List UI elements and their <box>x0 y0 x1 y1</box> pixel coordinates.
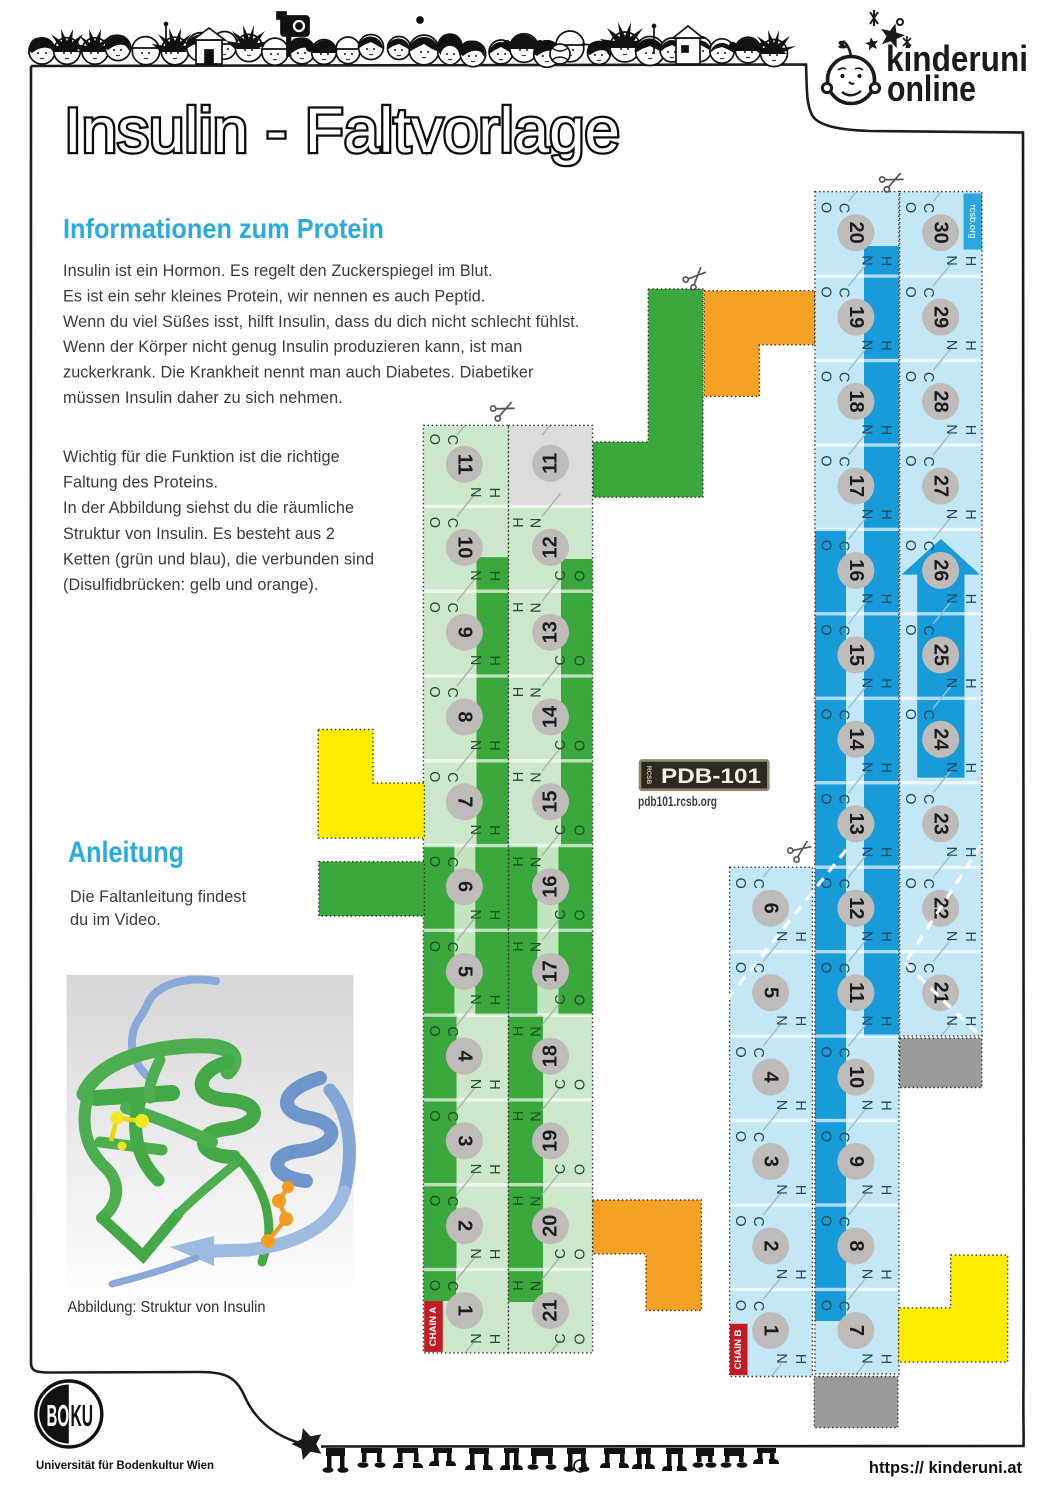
svg-text:Die Faltanleitung findest: Die Faltanleitung findest <box>70 888 247 906</box>
svg-text:N: N <box>943 255 959 265</box>
svg-text:O: O <box>817 1215 833 1226</box>
svg-text:H: H <box>511 687 527 697</box>
svg-text:6: 6 <box>453 881 475 892</box>
svg-text:N: N <box>858 762 874 772</box>
svg-text:O: O <box>817 287 833 298</box>
svg-text:8: 8 <box>453 711 475 722</box>
svg-text:(Disulfidbrücken: gelb und ora: (Disulfidbrücken: gelb und orange). <box>63 576 318 594</box>
svg-text:O: O <box>426 434 442 445</box>
svg-text:H: H <box>792 1354 808 1364</box>
svg-text:O: O <box>573 1079 589 1090</box>
svg-text:CHAIN A: CHAIN A <box>428 1307 439 1347</box>
svg-text:19: 19 <box>845 306 867 328</box>
svg-text:O: O <box>426 771 442 782</box>
svg-text:H: H <box>511 602 527 612</box>
svg-text:10: 10 <box>453 536 475 558</box>
svg-text:H: H <box>511 856 527 866</box>
svg-text:O: O <box>426 517 442 528</box>
svg-text:online: online <box>887 68 976 109</box>
svg-text:N: N <box>858 1016 874 1026</box>
svg-text:N: N <box>773 1015 789 1025</box>
svg-text:H: H <box>877 763 893 773</box>
svg-text:H: H <box>877 509 893 519</box>
svg-text:H: H <box>792 1269 808 1279</box>
svg-text:C: C <box>444 1026 460 1036</box>
svg-text:C: C <box>553 825 569 835</box>
svg-text:15: 15 <box>540 791 562 813</box>
svg-text:C: C <box>553 740 569 750</box>
svg-text:N: N <box>943 762 959 772</box>
svg-text:30: 30 <box>930 221 952 243</box>
svg-text:N: N <box>529 603 545 613</box>
svg-text:17: 17 <box>845 475 867 497</box>
svg-text:H: H <box>877 1185 893 1195</box>
svg-text:H: H <box>486 910 502 920</box>
svg-text:rcsb.org: rcsb.org <box>967 204 978 238</box>
svg-text:CHAIN B: CHAIN B <box>733 1329 744 1369</box>
svg-text:O: O <box>732 962 748 973</box>
svg-text:H: H <box>486 1079 502 1089</box>
svg-text:H: H <box>511 1111 527 1121</box>
svg-text:4: 4 <box>453 1051 475 1063</box>
svg-text:O: O <box>732 1047 748 1058</box>
svg-text:C: C <box>920 794 936 804</box>
svg-text:Struktur von Insulin. Es beste: Struktur von Insulin. Es besteht aus 2 <box>63 525 335 543</box>
svg-text:C: C <box>553 909 569 919</box>
svg-text:C: C <box>444 942 460 952</box>
svg-text:H: H <box>877 678 893 688</box>
svg-text:C: C <box>920 710 936 720</box>
svg-text:O: O <box>573 655 589 666</box>
svg-text:Abbildung: Struktur von Insuli: Abbildung: Struktur von Insulin <box>68 1299 266 1316</box>
svg-text:zuckerkrank. Die Krankheit nen: zuckerkrank. Die Krankheit nennt man auc… <box>63 364 534 382</box>
svg-text:N: N <box>529 1281 545 1291</box>
svg-text:O: O <box>817 1300 833 1311</box>
svg-text:C: C <box>835 1301 851 1311</box>
svg-text:Wichtig für die Funktion ist d: Wichtig für die Funktion ist die richtig… <box>63 448 340 466</box>
svg-text:O: O <box>817 962 833 973</box>
svg-text:BO: BO <box>47 1398 70 1433</box>
svg-text:O: O <box>817 202 833 213</box>
svg-text:24: 24 <box>930 728 952 751</box>
svg-text:13: 13 <box>845 813 867 835</box>
svg-text:N: N <box>858 1100 874 1110</box>
svg-text:C: C <box>444 518 460 528</box>
svg-text:C: C <box>835 1132 851 1142</box>
svg-text:16: 16 <box>540 875 562 897</box>
svg-text:O: O <box>732 1300 748 1311</box>
svg-text:H: H <box>486 656 502 666</box>
svg-text:H: H <box>486 1249 502 1259</box>
svg-text:C: C <box>920 963 936 973</box>
svg-text:C: C <box>750 1216 766 1226</box>
svg-text:O: O <box>573 825 589 836</box>
svg-text:H: H <box>877 1269 893 1279</box>
svg-text:O: O <box>573 570 589 581</box>
svg-text:H: H <box>962 509 978 519</box>
svg-text:H: H <box>877 932 893 942</box>
svg-text:N: N <box>773 1100 789 1110</box>
svg-text:Es ist ein sehr kleines Protei: Es ist ein sehr kleines Protein, wir nen… <box>63 287 486 305</box>
svg-text:N: N <box>773 1269 789 1279</box>
svg-text:Wenn der Körper nicht genug In: Wenn der Körper nicht genug Insulin prod… <box>63 338 522 356</box>
svg-text:26: 26 <box>930 559 952 581</box>
svg-text:N: N <box>529 772 545 782</box>
svg-text:H: H <box>792 932 808 942</box>
svg-text:C: C <box>835 710 851 720</box>
svg-text:19: 19 <box>540 1130 562 1152</box>
svg-text:18: 18 <box>845 390 867 412</box>
svg-text:C: C <box>553 1249 569 1259</box>
svg-text:N: N <box>467 570 483 580</box>
svg-text:N: N <box>858 509 874 519</box>
svg-text:5: 5 <box>760 987 782 998</box>
svg-text:O: O <box>902 287 918 298</box>
svg-text:In der Abbildung siehst du die: In der Abbildung siehst du die räumliche <box>63 499 354 517</box>
svg-text:C: C <box>444 435 460 445</box>
svg-text:28: 28 <box>930 390 952 412</box>
svg-text:H: H <box>511 1196 527 1206</box>
svg-text:O: O <box>902 624 918 635</box>
svg-text:C: C <box>835 794 851 804</box>
svg-text:H: H <box>486 488 502 498</box>
svg-text:H: H <box>511 1026 527 1036</box>
svg-text:N: N <box>858 255 874 265</box>
svg-text:C: C <box>835 203 851 213</box>
svg-text:O: O <box>902 878 918 889</box>
svg-text:C: C <box>750 1047 766 1057</box>
svg-text:N: N <box>943 424 959 434</box>
svg-text:N: N <box>943 509 959 519</box>
svg-text:C: C <box>835 372 851 382</box>
svg-text:N: N <box>467 825 483 835</box>
svg-text:N: N <box>858 340 874 350</box>
svg-text:7: 7 <box>453 796 475 807</box>
svg-text:O: O <box>732 1131 748 1142</box>
svg-text:C: C <box>835 625 851 635</box>
svg-text:9: 9 <box>453 627 475 638</box>
svg-text:3: 3 <box>760 1156 782 1167</box>
svg-text:C: C <box>444 1111 460 1121</box>
svg-text:C: C <box>444 857 460 867</box>
svg-text:21: 21 <box>540 1299 562 1321</box>
svg-text:H: H <box>962 763 978 773</box>
svg-text:C: C <box>444 1281 460 1291</box>
svg-text:O: O <box>573 740 589 751</box>
svg-text:O: O <box>426 686 442 697</box>
svg-text:N: N <box>529 687 545 697</box>
svg-text:C: C <box>920 541 936 551</box>
svg-text:du im Video.: du im Video. <box>70 911 161 929</box>
svg-text:14: 14 <box>845 728 867 751</box>
svg-text:C: C <box>444 687 460 697</box>
svg-text:O: O <box>902 709 918 720</box>
svg-text:H: H <box>962 256 978 266</box>
svg-text:N: N <box>943 847 959 857</box>
svg-text:H: H <box>486 571 502 581</box>
svg-text:H: H <box>792 1185 808 1195</box>
svg-text:N: N <box>858 931 874 941</box>
svg-text:Universität für Bodenkultur Wi: Universität für Bodenkultur Wien <box>36 1458 214 1472</box>
svg-text:H: H <box>511 772 527 782</box>
svg-text:H: H <box>962 425 978 435</box>
svg-text:H: H <box>877 847 893 857</box>
svg-text:18: 18 <box>540 1045 562 1067</box>
svg-text:C: C <box>920 203 936 213</box>
svg-text:20: 20 <box>845 221 867 243</box>
svg-text:C: C <box>835 1047 851 1057</box>
svg-text:C: C <box>920 625 936 635</box>
svg-text:H: H <box>486 1164 502 1174</box>
svg-text:N: N <box>858 847 874 857</box>
svg-text:N: N <box>529 857 545 867</box>
svg-text:H: H <box>962 340 978 350</box>
svg-text:N: N <box>529 1111 545 1121</box>
svg-text:25: 25 <box>930 644 952 666</box>
svg-text:N: N <box>773 1184 789 1194</box>
svg-text:C: C <box>553 1333 569 1343</box>
svg-text:https:// kinderuni.at: https:// kinderuni.at <box>869 1459 1023 1477</box>
svg-text:Insulin ist ein Hormon. Es reg: Insulin ist ein Hormon. Es regelt den Zu… <box>63 262 493 280</box>
svg-text:C: C <box>835 456 851 466</box>
svg-text:C: C <box>835 963 851 973</box>
svg-text:16: 16 <box>845 559 867 581</box>
svg-text:N: N <box>467 740 483 750</box>
svg-text:5: 5 <box>453 966 475 977</box>
svg-text:3: 3 <box>453 1135 475 1146</box>
svg-text:Insulin - Faltvorlage: Insulin - Faltvorlage <box>64 96 620 166</box>
svg-text:11: 11 <box>845 982 867 1003</box>
svg-text:N: N <box>467 487 483 497</box>
svg-text:6: 6 <box>760 903 782 914</box>
svg-text:N: N <box>858 1184 874 1194</box>
svg-text:4: 4 <box>760 1072 782 1084</box>
svg-text:C: C <box>444 603 460 613</box>
svg-text:29: 29 <box>930 306 952 328</box>
svg-text:H: H <box>877 1016 893 1026</box>
svg-text:14: 14 <box>540 705 562 728</box>
svg-text:H: H <box>486 740 502 750</box>
svg-text:N: N <box>467 1249 483 1259</box>
svg-text:O: O <box>817 455 833 466</box>
svg-text:H: H <box>962 678 978 688</box>
svg-text:C: C <box>444 1196 460 1206</box>
svg-text:Informationen zum Protein: Informationen zum Protein <box>63 213 384 244</box>
svg-text:O: O <box>573 994 589 1005</box>
svg-text:O: O <box>426 602 442 613</box>
svg-text:O: O <box>817 624 833 635</box>
svg-text:1: 1 <box>453 1305 475 1316</box>
svg-text:O: O <box>573 1164 589 1175</box>
svg-text:O: O <box>426 1110 442 1121</box>
svg-text:12: 12 <box>540 536 562 558</box>
svg-text:2: 2 <box>760 1240 782 1251</box>
svg-text:O: O <box>902 455 918 466</box>
svg-text:H: H <box>877 340 893 350</box>
svg-text:Faltung des Proteins.: Faltung des Proteins. <box>63 474 218 492</box>
svg-text:N: N <box>529 1026 545 1036</box>
svg-text:N: N <box>943 678 959 688</box>
svg-text:N: N <box>467 655 483 665</box>
svg-text:O: O <box>426 1195 442 1206</box>
svg-text:N: N <box>529 942 545 952</box>
svg-text:O: O <box>902 371 918 382</box>
svg-text:H: H <box>792 1016 808 1026</box>
svg-text:2: 2 <box>453 1220 475 1231</box>
svg-text:KU: KU <box>71 1398 94 1433</box>
svg-text:H: H <box>792 1100 808 1110</box>
svg-text:12: 12 <box>845 897 867 919</box>
svg-text:C: C <box>920 287 936 297</box>
svg-text:H: H <box>962 932 978 942</box>
svg-text:11: 11 <box>540 453 562 474</box>
svg-text:C: C <box>920 456 936 466</box>
svg-text:O: O <box>732 878 748 889</box>
svg-text:O: O <box>817 540 833 551</box>
svg-text:N: N <box>467 994 483 1004</box>
svg-text:H: H <box>962 594 978 604</box>
svg-text:23: 23 <box>930 813 952 835</box>
svg-text:21: 21 <box>930 982 952 1004</box>
svg-text:N: N <box>858 678 874 688</box>
svg-text:C: C <box>553 1164 569 1174</box>
svg-text:11: 11 <box>453 454 475 475</box>
svg-text:N: N <box>467 1079 483 1089</box>
svg-text:N: N <box>943 931 959 941</box>
svg-text:C: C <box>920 372 936 382</box>
svg-text:O: O <box>573 910 589 921</box>
svg-text:C: C <box>835 287 851 297</box>
svg-text:C: C <box>750 1301 766 1311</box>
svg-text:Ketten (grün und blau), die ve: Ketten (grün und blau), die verbunden si… <box>63 550 374 568</box>
svg-text:N: N <box>529 518 545 528</box>
svg-text:N: N <box>467 1333 483 1343</box>
svg-text:N: N <box>943 1016 959 1026</box>
svg-text:C: C <box>444 772 460 782</box>
svg-text:C: C <box>553 1079 569 1089</box>
svg-text:PDB-101: PDB-101 <box>661 765 761 788</box>
svg-text:H: H <box>511 1280 527 1290</box>
svg-text:H: H <box>877 594 893 604</box>
svg-text:N: N <box>467 909 483 919</box>
svg-text:H: H <box>486 995 502 1005</box>
svg-text:O: O <box>426 856 442 867</box>
svg-text:9: 9 <box>845 1156 867 1167</box>
svg-text:H: H <box>511 941 527 951</box>
svg-text:H: H <box>486 1334 502 1344</box>
svg-text:C: C <box>835 541 851 551</box>
svg-text:O: O <box>817 709 833 720</box>
svg-text:10: 10 <box>845 1066 867 1088</box>
svg-text:O: O <box>573 1249 589 1260</box>
svg-text:H: H <box>877 1100 893 1110</box>
svg-text:13: 13 <box>540 621 562 643</box>
svg-text:15: 15 <box>845 644 867 666</box>
svg-text:H: H <box>877 256 893 266</box>
svg-text:O: O <box>902 793 918 804</box>
svg-text:RCSB: RCSB <box>645 766 652 785</box>
svg-text:C: C <box>553 570 569 580</box>
svg-text:N: N <box>943 340 959 350</box>
svg-text:H: H <box>511 517 527 527</box>
svg-text:O: O <box>817 793 833 804</box>
svg-text:O: O <box>426 1280 442 1291</box>
svg-text:C: C <box>553 655 569 665</box>
svg-text:O: O <box>573 1333 589 1344</box>
svg-text:20: 20 <box>540 1215 562 1237</box>
svg-text:17: 17 <box>540 960 562 982</box>
svg-text:H: H <box>877 1354 893 1364</box>
svg-text:O: O <box>817 371 833 382</box>
svg-text:N: N <box>943 593 959 603</box>
svg-text:Wenn du viel Süßes isst, hilft: Wenn du viel Süßes isst, hilft Insulin, … <box>63 313 579 331</box>
svg-text:C: C <box>835 879 851 889</box>
svg-text:C: C <box>920 879 936 889</box>
svg-text:müssen Insulin daher zu sich n: müssen Insulin daher zu sich nehmen. <box>63 389 343 407</box>
svg-text:8: 8 <box>845 1240 867 1251</box>
svg-text:H: H <box>877 425 893 435</box>
svg-text:C: C <box>835 1216 851 1226</box>
svg-text:O: O <box>426 941 442 952</box>
svg-text:N: N <box>467 1164 483 1174</box>
svg-text:N: N <box>858 424 874 434</box>
svg-text:7: 7 <box>845 1325 867 1336</box>
svg-text:N: N <box>858 1269 874 1279</box>
svg-text:C: C <box>750 1132 766 1142</box>
svg-text:O: O <box>902 202 918 213</box>
svg-text:C: C <box>750 879 766 889</box>
svg-text:H: H <box>486 825 502 835</box>
svg-text:N: N <box>529 1196 545 1206</box>
svg-text:1: 1 <box>760 1325 782 1336</box>
svg-text:O: O <box>817 1047 833 1058</box>
svg-text:O: O <box>902 540 918 551</box>
svg-text:O: O <box>426 1026 442 1037</box>
svg-text:H: H <box>962 1016 978 1026</box>
svg-text:O: O <box>732 1215 748 1226</box>
svg-text:C: C <box>553 994 569 1004</box>
svg-text:N: N <box>773 1353 789 1363</box>
svg-text:27: 27 <box>930 475 952 497</box>
svg-text:N: N <box>858 1353 874 1363</box>
svg-text:O: O <box>817 1131 833 1142</box>
svg-text:pdb101.rcsb.org: pdb101.rcsb.org <box>638 793 717 809</box>
svg-text:Anleitung: Anleitung <box>68 836 184 869</box>
svg-text:N: N <box>858 593 874 603</box>
